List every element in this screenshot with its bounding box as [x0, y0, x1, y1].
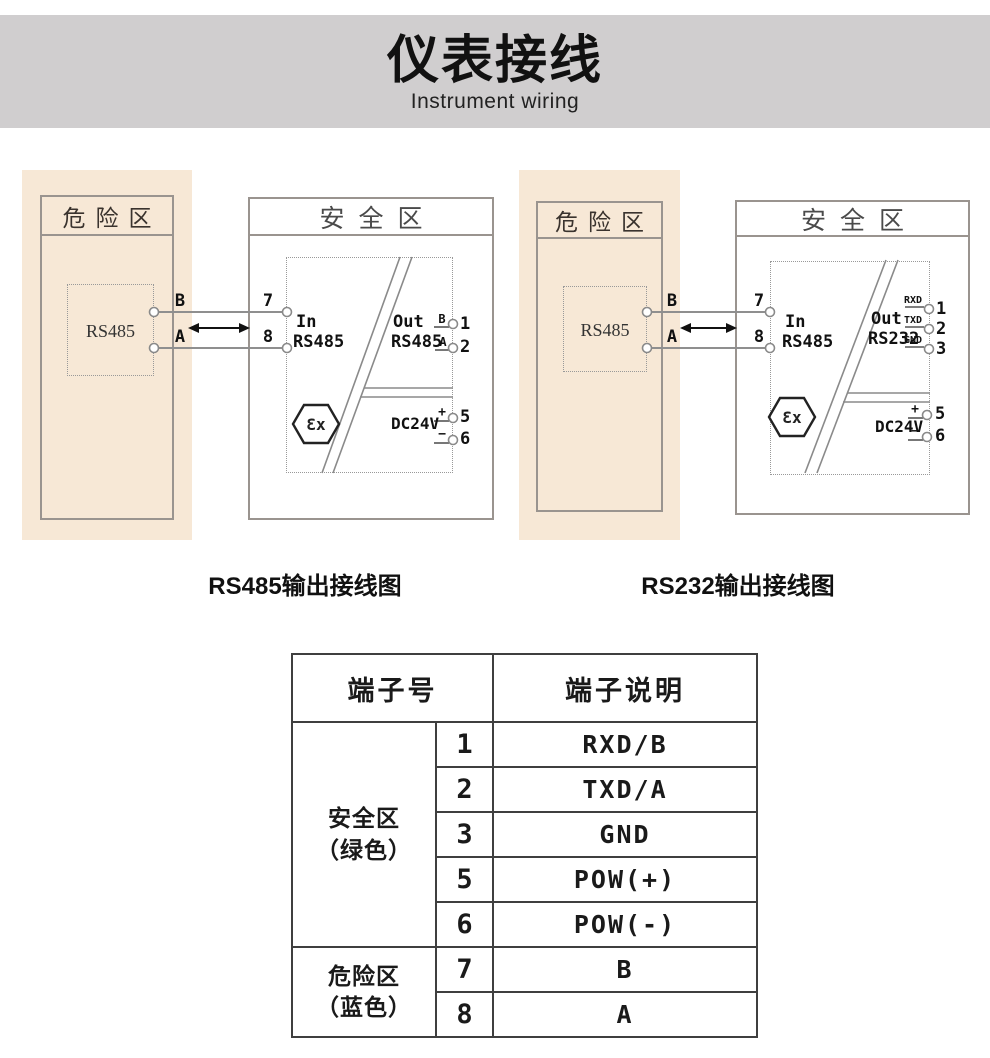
- zone-cell-hazard: 危险区 （蓝色）: [292, 947, 436, 1037]
- terminal-label-1: 1: [460, 316, 470, 333]
- signal-label-minus: −: [907, 425, 923, 438]
- table-row: 危险区 （蓝色） 7 B: [292, 947, 757, 992]
- terminal-no-cell: 3: [436, 812, 493, 857]
- signal-label-plus: +: [907, 403, 923, 416]
- caption-rs232: RS232输出接线图: [588, 566, 888, 601]
- table-row: 安全区 （绿色） 1 RXD/B: [292, 722, 757, 767]
- terminal-label-7: 7: [747, 293, 771, 310]
- header-banner: 仪表接线 Instrument wiring: [0, 15, 990, 128]
- terminal-label-7: 7: [256, 293, 280, 310]
- page-title: 仪表接线: [0, 35, 990, 87]
- terminal-label-6: 6: [460, 431, 470, 448]
- page: { "page": { "title": "仪表接线", "subtitle":…: [0, 0, 990, 1058]
- power-label: DC24V: [391, 416, 439, 432]
- terminal-label-5: 5: [935, 406, 945, 423]
- terminal-label-1: 1: [936, 301, 946, 318]
- header-terminal-no: 端子号: [292, 654, 493, 722]
- in-bus-label: RS485: [293, 334, 344, 351]
- out-label: Out: [393, 314, 424, 331]
- terminal-desc-cell: GND: [493, 812, 757, 857]
- terminal-label-5: 5: [460, 409, 470, 426]
- diagram-rs232-output: 危险区 RS485 安全区: [519, 170, 970, 540]
- terminal-desc-cell: TXD/A: [493, 767, 757, 812]
- zone-cell-safe: 安全区 （绿色）: [292, 722, 436, 947]
- hazard-device-label: RS485: [68, 321, 153, 342]
- signal-label-b: B: [434, 313, 450, 325]
- signal-label-minus: −: [434, 428, 450, 441]
- terminal-table: 端子号 端子说明 安全区 （绿色） 1 RXD/B 2 TXD/A 3 GND …: [291, 653, 758, 1038]
- hazard-device-label: RS485: [564, 320, 646, 341]
- terminal-desc-cell: RXD/B: [493, 722, 757, 767]
- terminal-desc-cell: B: [493, 947, 757, 992]
- terminal-desc-cell: A: [493, 992, 757, 1037]
- hazard-zone-title: 危险区: [545, 203, 654, 237]
- hazard-device-box: RS485: [563, 286, 647, 372]
- wire-label-b: B: [660, 293, 684, 310]
- table-header-row: 端子号 端子说明: [292, 654, 757, 722]
- isolator-module-box: [770, 261, 930, 475]
- diagram-rs485-output: 危险区 RS485 安全区: [22, 170, 495, 540]
- terminal-desc-cell: POW(-): [493, 902, 757, 947]
- signal-label-rxd: RXD: [901, 296, 925, 306]
- wire-label-b: B: [168, 293, 192, 310]
- in-label: In: [296, 314, 316, 331]
- wire-label-a: A: [660, 329, 684, 346]
- terminal-label-2: 2: [936, 321, 946, 338]
- safe-zone-title: 安全区: [787, 201, 918, 237]
- in-bus-label: RS485: [782, 334, 833, 351]
- terminal-label-8: 8: [256, 329, 280, 346]
- signal-label-a: A: [435, 336, 451, 348]
- safe-zone-title: 安全区: [305, 199, 436, 235]
- hazard-device-box: RS485: [67, 284, 154, 376]
- caption-rs485: RS485输出接线图: [155, 566, 455, 601]
- terminal-no-cell: 2: [436, 767, 493, 812]
- terminal-no-cell: 5: [436, 857, 493, 902]
- terminal-label-8: 8: [747, 329, 771, 346]
- signal-label-txd: TXD: [901, 316, 925, 326]
- terminal-desc-cell: POW(+): [493, 857, 757, 902]
- in-label: In: [785, 314, 805, 331]
- terminal-label-6: 6: [935, 428, 945, 445]
- isolator-module-box: [286, 257, 453, 473]
- wire-label-a: A: [168, 329, 192, 346]
- terminal-label-2: 2: [460, 339, 470, 356]
- signal-label-plus: +: [434, 406, 450, 419]
- terminal-no-cell: 8: [436, 992, 493, 1037]
- terminal-label-3: 3: [936, 341, 946, 358]
- header-terminal-desc: 端子说明: [493, 654, 757, 722]
- signal-label-gnd: GND: [901, 336, 925, 346]
- out-label: Out: [871, 311, 902, 328]
- terminal-no-cell: 6: [436, 902, 493, 947]
- hazard-zone-title: 危险区: [53, 199, 162, 233]
- page-subtitle: Instrument wiring: [0, 90, 990, 114]
- terminal-no-cell: 7: [436, 947, 493, 992]
- terminal-no-cell: 1: [436, 722, 493, 767]
